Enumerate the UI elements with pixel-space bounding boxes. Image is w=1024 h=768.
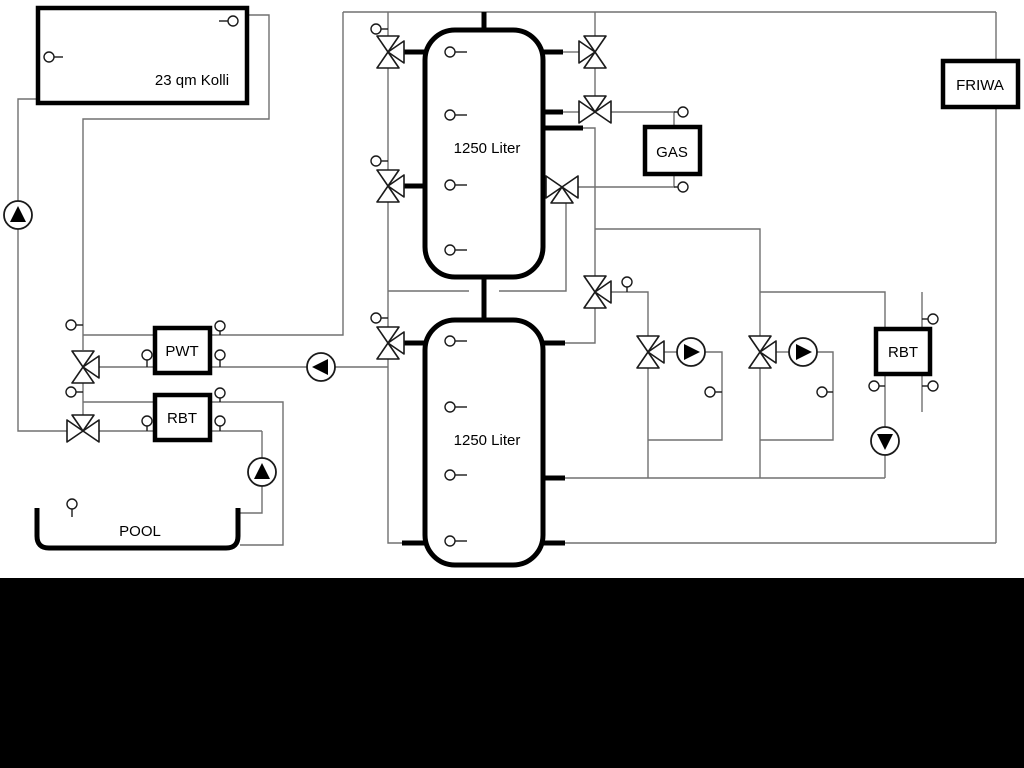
valve-circuit-2 (749, 336, 776, 368)
tank-sensor (445, 470, 455, 480)
temp-sensor (622, 277, 632, 287)
temp-sensor (705, 387, 715, 397)
tank-sensor (445, 245, 455, 255)
temp-sensor (215, 416, 225, 426)
temp-sensor (228, 16, 238, 26)
valve-pwt (72, 351, 99, 383)
temp-sensor (66, 320, 76, 330)
pipe (18, 229, 67, 431)
pool-sensor (67, 499, 77, 509)
schematic-canvas: 23 qm Kolli 1250 Liter 1250 Liter PWT RB… (0, 0, 1024, 768)
tank-bottom-label: 1250 Liter (454, 432, 521, 449)
pipe (388, 359, 404, 543)
rbt-right-label: RBT (888, 344, 918, 361)
tank-sensor (445, 336, 455, 346)
gas-label: GAS (656, 144, 688, 161)
hydraulic-schematic: 23 qm Kolli 1250 Liter 1250 Liter PWT RB… (0, 0, 1024, 768)
valve-gas-return (546, 176, 578, 203)
tank-sensor (445, 402, 455, 412)
valve-gas-top (579, 36, 606, 68)
pipe (611, 292, 648, 336)
temp-sensor (817, 387, 827, 397)
tank-sensor (445, 180, 455, 190)
temp-sensor (678, 182, 688, 192)
temp-sensor (928, 381, 938, 391)
pipe (760, 292, 885, 329)
friwa-label: FRIWA (956, 77, 1004, 94)
bottom-black-bar (0, 578, 1024, 768)
temp-sensor (928, 314, 938, 324)
valve-tank-left-1 (377, 36, 404, 68)
pipe (18, 99, 38, 201)
pipe (565, 308, 595, 343)
temp-sensor (142, 416, 152, 426)
temp-sensor (869, 381, 879, 391)
pool-label: POOL (119, 523, 161, 540)
tank-sensor (445, 47, 455, 57)
valve-supply (584, 276, 611, 308)
tank-sensor (445, 110, 455, 120)
valve-pool (67, 415, 99, 442)
collector-label: 23 qm Kolli (155, 72, 229, 89)
temp-sensor (44, 52, 54, 62)
pipe (238, 486, 262, 513)
pipe (583, 128, 595, 229)
pwt-label: PWT (165, 343, 198, 360)
temp-sensor (66, 387, 76, 397)
valve-tank-left-2 (377, 170, 404, 202)
rbt-left-label: RBT (167, 410, 197, 427)
temp-sensor (215, 388, 225, 398)
pipe (595, 229, 760, 336)
temp-sensor (678, 107, 688, 117)
temp-sensor (142, 350, 152, 360)
tank-top-label: 1250 Liter (454, 140, 521, 157)
tank-sensor (445, 536, 455, 546)
temp-sensor (371, 24, 381, 34)
valve-circuit-1 (637, 336, 664, 368)
valve-gas-flow (579, 96, 611, 123)
temp-sensor (215, 321, 225, 331)
temp-sensor (371, 156, 381, 166)
temp-sensor (215, 350, 225, 360)
temp-sensor (371, 313, 381, 323)
valve-tank-left-3 (377, 327, 404, 359)
